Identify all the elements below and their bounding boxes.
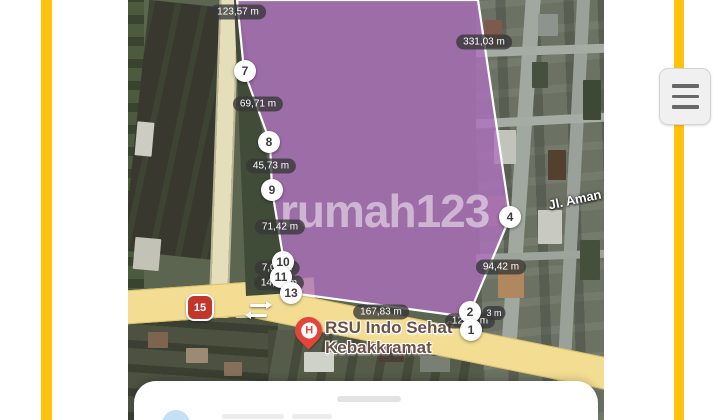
vertex-marker-13[interactable]: 13 [280, 282, 302, 304]
route-shield-15: 15 [186, 294, 214, 321]
hospital-label[interactable]: RSU Indo Sehat Kebakkramat [325, 318, 453, 358]
menu-button[interactable] [659, 68, 711, 125]
hospital-name-line2: Kebakkramat [325, 338, 453, 358]
roundabout-arrows-icon [245, 297, 273, 325]
listing-avatar [162, 410, 190, 420]
hospital-letter: H [301, 323, 317, 339]
listing-text-placeholder [292, 414, 332, 419]
satellite-map[interactable]: rumah123 Jl. Aman 15 H RSU Indo Sehat Ke… [128, 0, 604, 420]
vertex-marker-1[interactable]: 1 [460, 319, 482, 341]
vertex-marker-7[interactable]: 7 [234, 60, 256, 82]
distance-label: 45,73 m [246, 159, 296, 174]
distance-label: 3 m [482, 306, 505, 320]
drag-handle[interactable] [337, 396, 401, 402]
screenshot-root: rumah123 Jl. Aman 15 H RSU Indo Sehat Ke… [0, 0, 720, 420]
listing-text-placeholder [222, 414, 284, 419]
left-accent-bar [41, 0, 52, 420]
distance-label: 167,83 m [353, 305, 409, 320]
distance-label: 123,57 m [210, 5, 266, 20]
right-accent-bar [674, 0, 684, 420]
distance-label: 71,42 m [255, 220, 305, 235]
vertex-marker-4[interactable]: 4 [499, 206, 521, 228]
distance-label: 69,71 m [233, 97, 283, 112]
hospital-name-line1: RSU Indo Sehat [325, 318, 453, 338]
watermark: rumah123 [280, 184, 489, 238]
vertex-marker-9[interactable]: 9 [261, 179, 283, 201]
distance-label: 94,42 m [476, 260, 526, 275]
hamburger-icon [672, 84, 699, 88]
vertex-marker-8[interactable]: 8 [258, 131, 280, 153]
bottom-sheet[interactable] [134, 381, 598, 420]
distance-label: 331,03 m [456, 35, 512, 50]
